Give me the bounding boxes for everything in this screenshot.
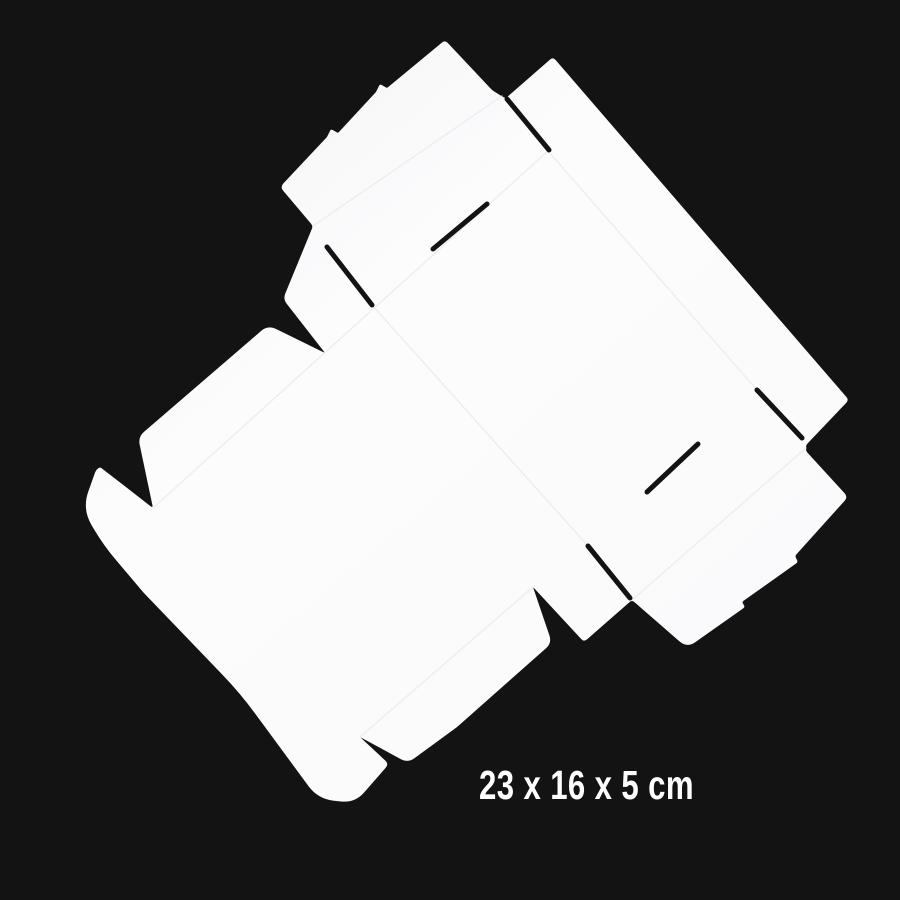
dimensions-label: 23 x 16 x 5 cm: [479, 765, 694, 806]
box-blank-shape: [86, 41, 848, 801]
product-photo-scene: 23 x 16 x 5 cm: [0, 0, 900, 900]
box-dieline-graphic: [0, 0, 900, 900]
